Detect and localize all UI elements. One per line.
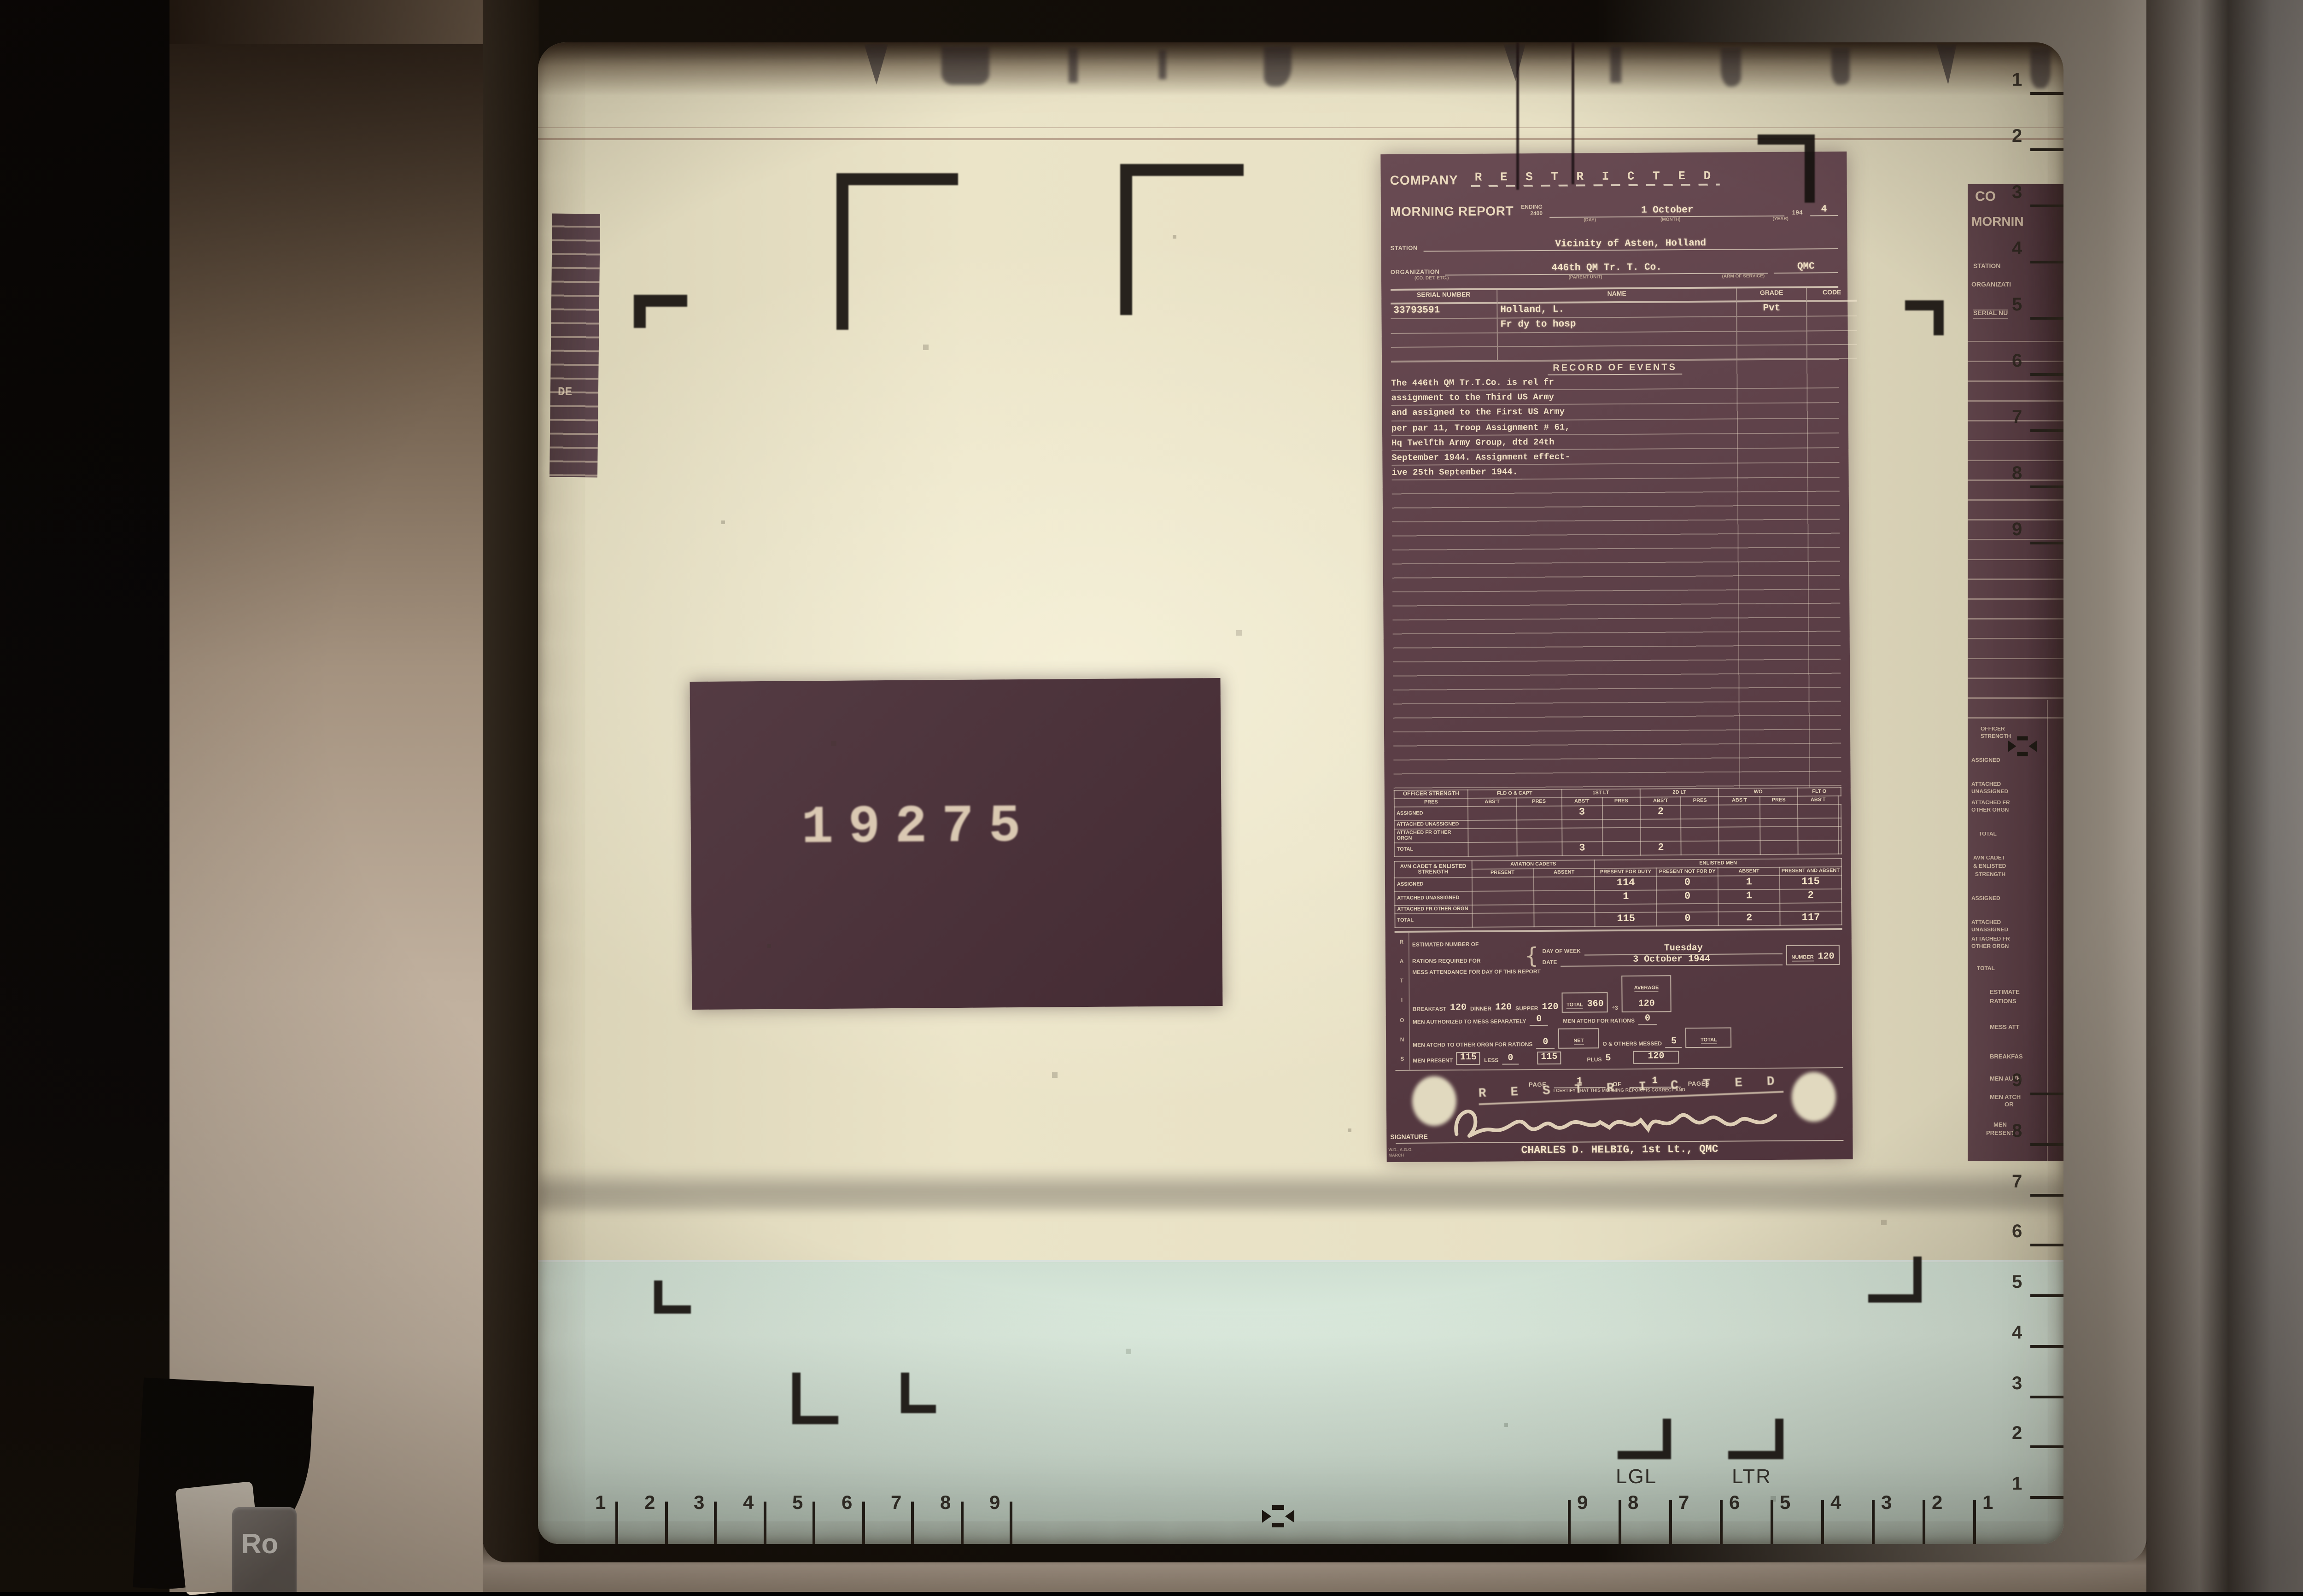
film-top-glyph [1610,46,1621,83]
pres-abst-cell: PRES [1760,796,1798,805]
ruler-tick: 5 [1771,1492,1798,1544]
breakfast-value: 120 [1450,1004,1467,1013]
size-mark-letter-bracket [1728,1419,1783,1459]
officer-strength-title: OFFICER STRENGTH [1394,790,1468,799]
roster-body: 33793591 Holland, L. Pvt Fr dy to hosp [1391,302,1838,334]
supper-value: 120 [1542,1004,1558,1013]
ruler-tick: 4 [1821,1492,1849,1544]
month-sublabel: (MONTH) [1660,217,1680,226]
certifying-officer-row: CHARLES D. HELBIG, 1st Lt., QMC [1396,1144,1843,1157]
enlisted-subheader-cell: PRESENT NOT FOR DY [1656,868,1718,877]
film-frame-blur-band [538,1168,2063,1216]
pres-abst-cell: ABS'T [1798,796,1839,805]
roster-header-cell: NAME [1497,288,1737,304]
year-value: 4 [1810,205,1838,216]
film-scratch-line [538,138,2063,140]
aviation-cadets-header: AVIATION CADETS [1472,860,1595,869]
letter-size-label: LTR [1732,1465,1771,1489]
ruler-tick: 6 [2008,351,2063,390]
ruler-tick: 9 [2008,1070,2063,1109]
rations-rail: RATIONS [1395,933,1410,1070]
plus-value: 5 [1605,1055,1611,1064]
report-date-value: 1 October [1550,205,1785,218]
mess-total-value: 360 [1587,1000,1604,1010]
men-present-value: 115 [1456,1052,1480,1065]
roster-header-cell: CODE [1807,288,1857,302]
film-top-glyph [1159,50,1166,79]
ruler-tick: 4 [2008,239,2063,277]
ruler-tick: 7 [1669,1492,1697,1544]
previous-frame-edge: DE [549,213,600,477]
ruler-tick: 9 [989,1492,1017,1544]
atchd-other-value: 0 [1536,1039,1555,1049]
film-top-glyph [941,46,989,85]
ruler-tick: 3 [2008,1373,2063,1412]
frame-number-plate: 19275 [690,678,1223,1010]
registration-corner-mark [1868,1257,1922,1303]
officer-body: ASSIGNED 3 2 ATTACHED UNASSIGNED [1394,804,1841,857]
ruler-tick: 7 [891,1492,918,1544]
ruler-tick: 7 [2008,1171,2063,1210]
mess-separately-value: 0 [1530,1016,1548,1026]
reader-right-bezel [2146,0,2303,1592]
film-top-glyph [1831,48,1850,85]
ruler-tick: 5 [2008,295,2063,333]
registration-corner-mark [634,295,687,328]
atchd-other-row: MEN ATCHD TO OTHER ORGN FOR RATIONS 0 NE… [1413,1027,1840,1050]
certifying-officer-name: CHARLES D. HELBIG, 1st Lt., QMC [1521,1145,1718,1156]
enlisted-subheader-cell: PRESENT FOR DUTY [1595,868,1657,877]
pres-abst-cell: PRES [1516,798,1561,807]
officer-group-cell: FLD O & CAPT [1468,789,1561,798]
ruler-tick: 8 [2008,1121,2063,1160]
officer-group-cell: 1ST LT [1561,789,1640,798]
photo-of-microfilm-reader: DE 19275 COMPANY R E S T R I C T E D MOR… [0,0,2303,1592]
table-row: TOTAL 3 2 [1394,840,1841,857]
frame-number: 19275 [801,797,1035,859]
others-messed-value: 5 [1666,1038,1682,1048]
company-title: COMPANY [1390,172,1458,187]
officer-group-cell: WO [1719,788,1798,797]
ruler-tick: 4 [2008,1323,2063,1362]
arm-sublabel: (ARM OF SERVICE) [1722,274,1765,283]
ruler-tick: 9 [1568,1492,1596,1544]
station-label: STATION [1391,246,1418,252]
name-cell: Fr dy to hosp [1498,317,1737,333]
arm-of-service-value: QMC [1774,262,1838,274]
name-cell: Holland, L. [1497,302,1737,318]
signature-scrawl [1451,1095,1783,1143]
size-mark-legal-bracket [1618,1419,1671,1459]
record-of-events-lines: The 446th QM Tr.T.Co. is rel frassignmen… [1391,374,1839,481]
organization-label: ORGANIZATION [1391,269,1440,276]
pres-abst-cell: ABS'T [1719,796,1760,805]
microfilm-screen: DE 19275 COMPANY R E S T R I C T E D MOR… [538,42,2063,1544]
film-top-glyph [1721,48,1741,87]
pres-abst-cell: ABS'T [1468,798,1517,807]
ruler-tick: 2 [1923,1492,1950,1544]
rations-estimate-row: ESTIMATED NUMBER OF RATIONS REQUIRED FOR… [1412,932,1840,968]
ruler-tick: 1 [2008,1474,2063,1513]
registration-corner-mark [1758,134,1815,203]
organization-row: ORGANIZATION 446th QM Tr. T. Co. QMC [1391,249,1838,276]
registration-corner-mark [654,1280,691,1314]
right-bottom-ruler: 987654321 [2008,1070,2063,1513]
ruler-tick: 8 [2008,463,2063,502]
previous-frame-fragment: DE [558,385,573,399]
ruler-tick: 2 [644,1492,672,1544]
rations-section: RATIONS ESTIMATED NUMBER OF RATIONS REQU… [1395,928,1843,1071]
signature-label: SIGNATURE [1390,1134,1428,1141]
film-top-glyph [1264,46,1292,87]
registration-corner-mark [792,1373,838,1424]
grade-cell [1737,316,1807,332]
enlisted-subheader-cell: PRESENT AND ABSENT [1780,867,1841,876]
machine-key: Ro [232,1507,297,1592]
ruler-tick: 6 [2008,1222,2063,1261]
rations-number-value: 120 [1818,952,1834,962]
bottom-left-ruler: 123456789 [595,1492,1017,1544]
ruler-tick: 1 [595,1492,623,1544]
roster-header-cell: GRADE [1737,288,1807,302]
pres-abst-cell: ABS'T [1561,797,1602,806]
rations-number-box: NUMBER 120 [1786,945,1840,965]
code-cell [1807,302,1857,317]
doc-footer: PAGE 1 OF 1 PAGES I CERTIFY THAT THIS MO… [1395,1068,1843,1157]
morning-report-document: COMPANY R E S T R I C T E D MORNING REPO… [1380,152,1853,1162]
registration-corner-mark [836,173,958,330]
ruler-tick: 2 [2008,126,2063,165]
net-box-label: NET [1558,1028,1599,1049]
station-row: STATION Vicinity of Asten, Holland [1390,225,1838,252]
officer-group-cell: 2D LT [1640,789,1719,797]
film-needle-mark [1516,42,1519,190]
co-det-sublabel: (CO. DET. ETC.) [1415,275,1449,285]
photo-dark-left-edge [0,0,170,1592]
machine-key-label: Ro [241,1531,278,1559]
roster-table: SERIAL NUMBERNAMEGRADECODE 33793591 Holl… [1391,286,1839,362]
ruler-tick: 8 [1619,1492,1646,1544]
net-value: 115 [1537,1052,1561,1064]
ruler-tick: 6 [842,1492,869,1544]
roster-blank-row [1391,345,1839,362]
serial-cell: 33793591 [1391,304,1497,319]
record-line: ive 25th September 1944. [1391,463,1839,480]
less-value: 0 [1502,1054,1519,1064]
registration-crosshair-icon [2008,736,2037,756]
film-needle-mark [1572,42,1574,184]
divisor: ÷3 [1612,1006,1618,1012]
ruler-tick: 3 [1872,1492,1900,1544]
ruler-tick: 3 [2008,182,2063,221]
year-sublabel: (YEAR) [1772,216,1789,226]
classification-header: R E S T R I C T E D [1471,169,1720,187]
registration-corner-mark [1905,300,1944,335]
brace-glyph: { [1525,945,1539,967]
pres-abst-cell: PRES [1394,798,1468,807]
ruler-tick: 6 [1720,1492,1748,1544]
dinner-value: 120 [1495,1004,1512,1013]
ruler-tick: 7 [2008,407,2063,446]
record-of-events: RECORD OF EVENTS The 446th QM Tr.T.Co. i… [1391,360,1840,481]
ruler-tick: 2 [2008,1424,2063,1462]
ruler-tick: 5 [2008,1272,2063,1311]
rations-total-box-label: TOTAL [1686,1027,1732,1048]
ruler-tick: 5 [792,1492,820,1544]
registration-corner-mark [901,1373,936,1413]
ending-label: ENDING 2400 [1521,205,1543,218]
ruler-tick: 3 [694,1492,721,1544]
roster-header-cell: SERIAL NUMBER [1391,290,1497,304]
parent-unit-sublabel: (PARENT UNIT) [1568,275,1602,284]
bottom-right-ruler: 987654321 [1568,1492,2001,1544]
legal-size-label: LGL [1616,1465,1657,1489]
day-sublabel: (DAY) [1584,217,1596,227]
film-scratch-line [538,127,2063,128]
ruler-tick: 9 [2008,520,2063,558]
code-cell [1807,316,1857,332]
atchd-rations-value: 0 [1638,1015,1657,1025]
pres-abst-cell: PRES [1681,797,1719,806]
enlisted-subheader-cell: ABSENT [1533,868,1595,877]
serial-cell [1391,319,1498,334]
mess-average-box: AVERAGE 120 [1621,975,1671,1012]
film-dust-specks [538,42,540,44]
grand-total-value: 120 [1633,1051,1679,1064]
enlisted-body: ASSIGNED 1140 1115 ATTACHED UNASSIGNED 1… [1395,875,1842,928]
registration-corner-mark [1120,164,1244,315]
blank-ruled-area [1392,478,1841,790]
grade-cell: Pvt [1737,302,1807,317]
table-row: TOTAL 1150 2117 [1395,911,1841,928]
rations-date-value: 3 October 1944 [1561,955,1783,967]
ruler-tick: 4 [743,1492,771,1544]
enlisted-subheader-cell: ABSENT [1718,867,1780,876]
officer-group-cell: FLT O [1798,788,1841,796]
pres-abst-cell: PRES [1602,797,1640,806]
enlisted-strength-title: AVN CADET & ENLISTED STRENGTH [1395,861,1472,878]
ruler-tick: 1 [2008,70,2063,109]
ruler-tick: 8 [940,1492,968,1544]
film-top-glyph [1069,48,1078,83]
registration-crosshair-icon [1262,1505,1294,1527]
enlisted-strength-table: AVN CADET & ENLISTED STRENGTH AVIATION C… [1394,858,1842,928]
right-top-ruler: 123456789 [2008,70,2063,558]
morning-report-title: MORNING REPORT [1390,203,1514,219]
form-note: W.D., A.G.O. MARCH [1388,1147,1412,1158]
mess-separately-row: MEN AUTHORIZED TO MESS SEPARATELY 0 MEN … [1413,1014,1840,1027]
pres-abst-cell: ABS'T [1640,797,1681,806]
mess-attendance-row: BREAKFAST 120 DINNER 120 SUPPER 120 TOTA… [1412,974,1840,1014]
reader-left-bezel [170,0,483,1592]
ruler-tick: 1 [1973,1492,2001,1544]
mess-average-value: 120 [1638,1000,1655,1010]
year-prefix: 194 [1792,210,1803,216]
day-of-week-value: Tuesday [1584,944,1783,956]
men-present-row: MEN PRESENT 115 LESS 0 115 PLUS 5 120 [1413,1050,1840,1065]
officer-strength-table: OFFICER STRENGTH FLD O & CAPT1ST LT2D LT… [1394,787,1842,857]
mess-total-box: TOTAL 360 [1562,992,1608,1013]
enlisted-subheader-cell: PRESENT [1472,869,1533,877]
signature-row: SIGNATURE W.D., A.G.O. MARCH [1396,1093,1844,1144]
